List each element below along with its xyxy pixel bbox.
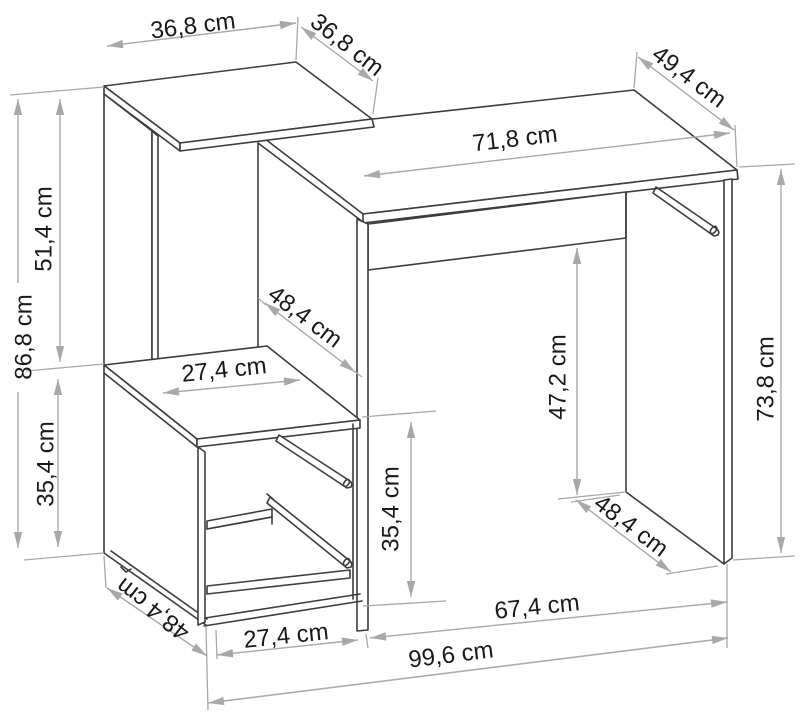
right-panel-front-edge — [724, 179, 732, 564]
label-cabinet-height-mid: 35,4 cm — [378, 466, 405, 551]
label-desk-height: 73,8 cm — [753, 336, 780, 421]
label-shelf-top-width: 36,8 cm — [149, 7, 237, 44]
label-under-desk-clearance: 47,2 cm — [545, 334, 572, 419]
label-under-desk-width: 67,4 cm — [493, 589, 581, 625]
cabinet-front-left-edge — [198, 447, 205, 625]
label-shelf-total-height: 86,8 cm — [11, 294, 38, 379]
cabinet-bottom-board — [207, 570, 350, 594]
label-side-panel-depth: 48,4 cm — [589, 490, 673, 563]
label-desktop-depth: 49,4 cm — [647, 41, 731, 114]
desk-bracket — [653, 187, 719, 236]
label-shelf-upper-height: 51,4 cm — [31, 186, 58, 271]
label-support-panel-depth: 48,4 cm — [263, 281, 347, 354]
drawer-rail-lower — [267, 494, 352, 568]
furniture-diagram-svg: 36,8 cm 36,8 cm 49,4 cm 71,8 cm 51,4 cm … — [0, 0, 800, 716]
shelf-left-panel — [104, 94, 152, 391]
label-cabinet-width: 27,4 cm — [242, 618, 330, 654]
drawer-rail-upper — [276, 435, 352, 488]
label-cabinet-height-left: 35,4 cm — [33, 421, 60, 506]
technical-drawing-canvas: 36,8 cm 36,8 cm 49,4 cm 71,8 cm 51,4 cm … — [0, 0, 800, 716]
label-overall-width: 99,6 cm — [407, 636, 495, 673]
label-shelf-top-depth: 36,8 cm — [305, 8, 389, 82]
